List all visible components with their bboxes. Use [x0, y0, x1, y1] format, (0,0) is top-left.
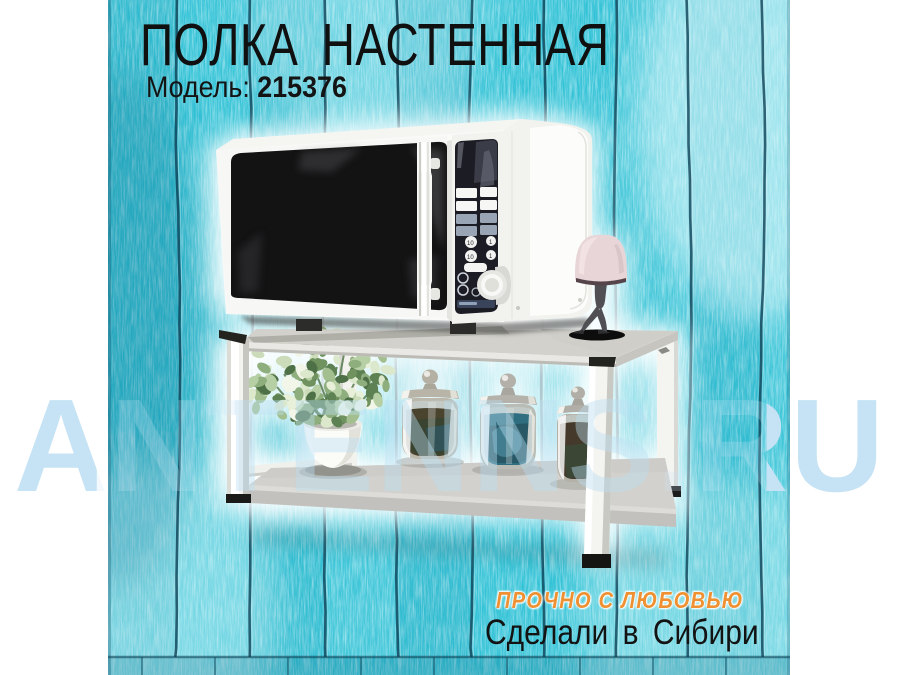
svg-text:10: 10	[467, 255, 474, 261]
svg-text:10: 10	[467, 241, 474, 247]
